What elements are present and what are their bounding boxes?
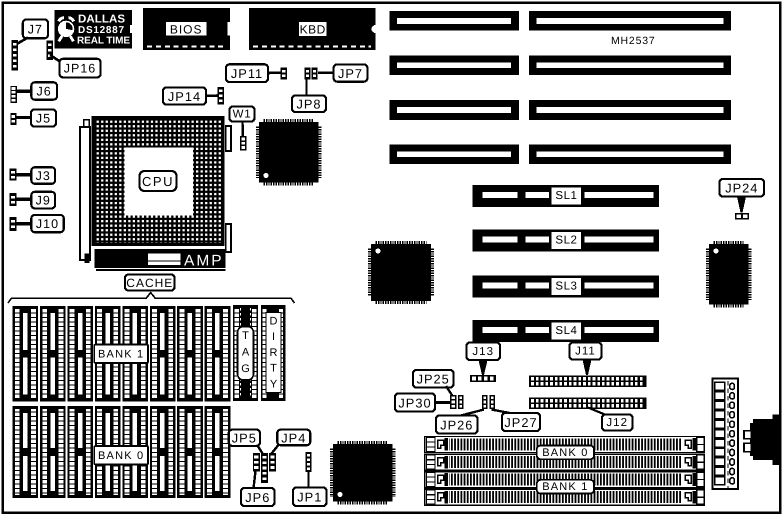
- svg-text:J6: J6: [36, 85, 51, 99]
- svg-text:T: T: [242, 330, 249, 342]
- svg-text:R: R: [270, 347, 278, 359]
- svg-text:Y: Y: [270, 378, 278, 390]
- svg-text:JP14: JP14: [168, 89, 201, 104]
- svg-text:SL2: SL2: [555, 235, 577, 247]
- svg-text:D: D: [270, 316, 278, 328]
- svg-text:J9: J9: [36, 194, 51, 208]
- svg-text:DS12887: DS12887: [78, 25, 124, 36]
- svg-text:SL4: SL4: [555, 325, 577, 337]
- svg-text:J10: J10: [36, 217, 59, 231]
- svg-text:BANK 0: BANK 0: [542, 447, 588, 459]
- svg-text:JP27: JP27: [504, 415, 537, 430]
- svg-text:KBD: KBD: [300, 23, 326, 37]
- svg-text:MH2537: MH2537: [611, 35, 656, 47]
- svg-text:JP6: JP6: [245, 490, 270, 505]
- svg-text:JP24: JP24: [725, 181, 758, 196]
- svg-text:JP8: JP8: [296, 97, 321, 112]
- svg-text:CPU: CPU: [142, 174, 174, 189]
- svg-text:I: I: [272, 331, 275, 343]
- svg-text:JP25: JP25: [417, 372, 450, 387]
- svg-text:T: T: [270, 363, 277, 375]
- svg-text:JP4: JP4: [281, 431, 306, 446]
- svg-text:BANK 1: BANK 1: [542, 481, 588, 493]
- svg-text:JP11: JP11: [231, 66, 263, 81]
- svg-text:J5: J5: [36, 112, 51, 126]
- svg-text:REAL TIME: REAL TIME: [77, 36, 130, 47]
- svg-text:BANK 0: BANK 0: [98, 450, 144, 462]
- svg-text:DALLAS: DALLAS: [78, 13, 125, 25]
- svg-text:BIOS: BIOS: [170, 22, 203, 36]
- svg-text:BANK 1: BANK 1: [98, 348, 144, 360]
- svg-text:JP16: JP16: [64, 62, 97, 76]
- svg-text:W1: W1: [233, 109, 252, 121]
- svg-text:JP5: JP5: [232, 431, 257, 446]
- svg-text:J7: J7: [28, 22, 43, 36]
- svg-text:CACHE: CACHE: [126, 276, 173, 290]
- svg-text:JP26: JP26: [440, 418, 473, 433]
- svg-text:J12: J12: [606, 417, 628, 429]
- svg-text:J13: J13: [472, 346, 494, 358]
- svg-text:J3: J3: [36, 169, 51, 183]
- svg-text:JP30: JP30: [398, 396, 431, 411]
- svg-text:J11: J11: [575, 346, 596, 358]
- svg-text:AMP: AMP: [184, 253, 224, 270]
- svg-text:SL1: SL1: [555, 190, 577, 202]
- svg-text:JP1: JP1: [297, 490, 322, 505]
- svg-text:JP7: JP7: [338, 66, 363, 81]
- svg-text:A: A: [242, 347, 250, 359]
- svg-text:SL3: SL3: [555, 281, 577, 293]
- svg-text:G: G: [241, 363, 250, 375]
